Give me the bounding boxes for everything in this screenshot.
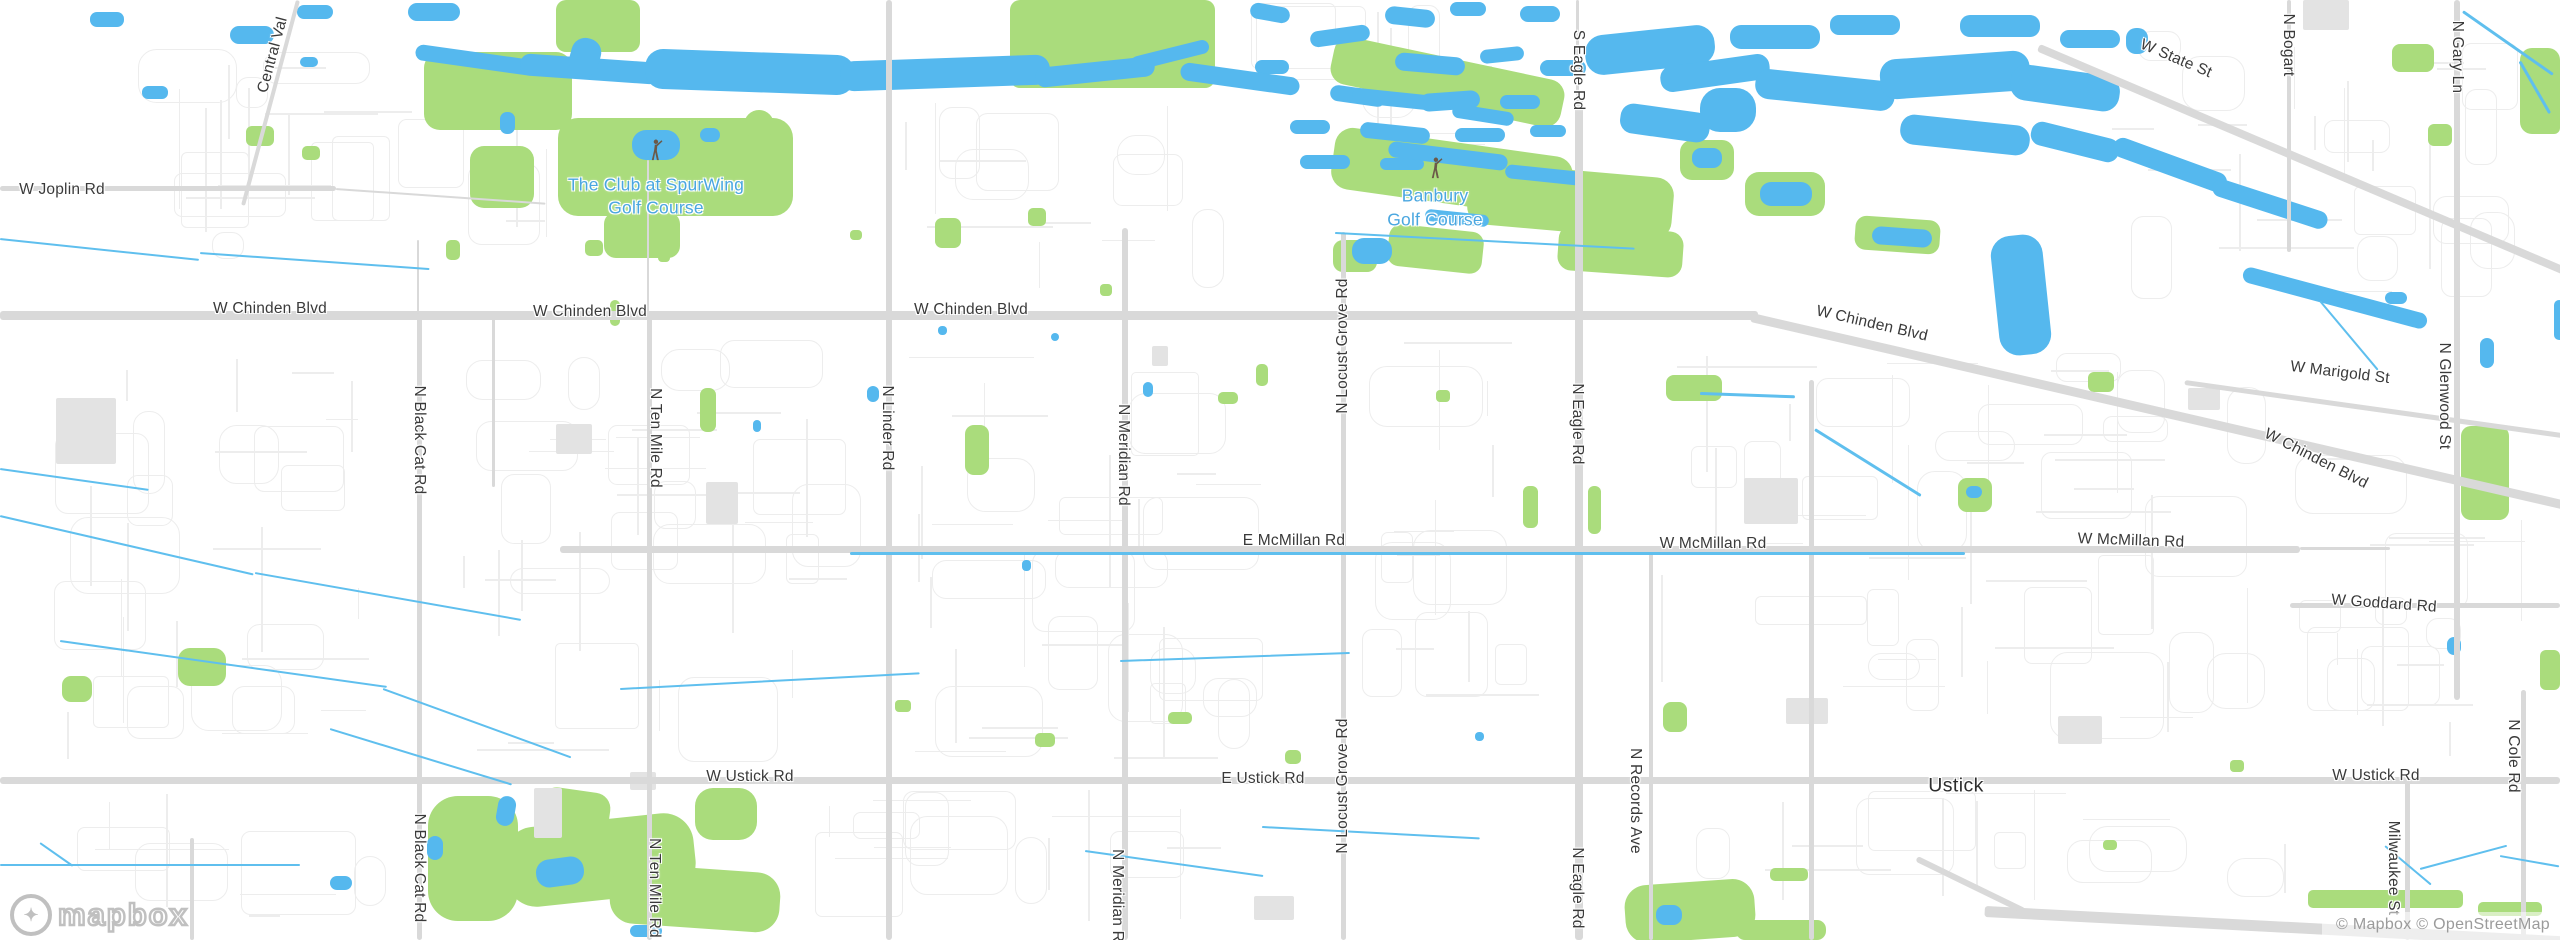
- minor-road-loop: [1055, 549, 1167, 588]
- water-body: [90, 12, 124, 27]
- park-area: [695, 788, 757, 840]
- minor-road-loop: [1129, 393, 1226, 454]
- minor-road-segment: [2167, 662, 2169, 732]
- poi-label: The Club at SpurWing: [568, 175, 744, 196]
- minor-road-loop: [1059, 497, 1163, 535]
- street-label: W Ustick Rd: [706, 768, 793, 786]
- water-body: [1300, 155, 1350, 169]
- minor-road-segment: [351, 381, 353, 452]
- building: [1786, 698, 1828, 724]
- minor-road-segment: [1878, 659, 1937, 661]
- street-label: W McMillan Rd: [2077, 530, 2184, 552]
- street-label: W Joplin Rd: [19, 181, 105, 199]
- minor-road-segment: [745, 522, 812, 524]
- minor-road-segment: [288, 115, 290, 195]
- water-body: [1989, 233, 2053, 358]
- minor-road-loop: [247, 624, 324, 670]
- minor-road-segment: [1492, 445, 1494, 497]
- minor-road-segment: [789, 578, 847, 580]
- minor-road-segment: [126, 370, 128, 401]
- park-area: [1523, 486, 1538, 528]
- minor-road-segment: [2389, 537, 2485, 539]
- park-area: [1328, 34, 1568, 130]
- minor-road-segment: [240, 894, 336, 896]
- water-body: [2385, 292, 2407, 304]
- minor-road-loop: [232, 686, 295, 733]
- water-body: [408, 3, 460, 21]
- park-area: [2088, 372, 2114, 392]
- building: [556, 424, 592, 454]
- minor-road-segment: [1677, 366, 1817, 368]
- park-area: [608, 862, 782, 934]
- minor-road-loop: [1203, 678, 1258, 718]
- water-body: [2008, 63, 2122, 114]
- minor-road-segment: [806, 419, 808, 537]
- park-area: [1436, 390, 1450, 402]
- minor-road-segment: [213, 548, 320, 550]
- minor-road-loop: [1362, 629, 1402, 697]
- park-area: [1588, 486, 1601, 534]
- street-label: N Ten Mile Rd: [645, 838, 663, 938]
- minor-road-segment: [1394, 531, 1454, 533]
- waterway-line: [2420, 845, 2507, 870]
- waterway-line: [850, 552, 1965, 555]
- minor-road-segment: [1976, 801, 1978, 891]
- minor-road-segment: [952, 415, 1048, 417]
- park-area: [658, 250, 670, 262]
- water-body: [1830, 15, 1900, 35]
- road: [492, 312, 495, 487]
- minor-road-loop: [501, 474, 552, 544]
- water-body: [1618, 102, 1711, 144]
- minor-road-loop: [1495, 644, 1527, 685]
- minor-road-loop: [241, 831, 356, 915]
- street-label: N Black Cat Rd: [410, 814, 428, 923]
- minor-road-segment: [2151, 495, 2153, 629]
- minor-road-segment: [738, 492, 800, 494]
- minor-road-segment: [321, 710, 366, 712]
- minor-road-segment: [939, 160, 1026, 162]
- water-body: [644, 48, 855, 95]
- minor-road-loop: [1113, 154, 1183, 205]
- minor-road-loop: [332, 136, 390, 220]
- minor-road-segment: [2036, 511, 2171, 513]
- building: [2058, 716, 2102, 744]
- park-area: [1285, 750, 1301, 764]
- park-area: [1666, 375, 1722, 401]
- street-label: N Eagle Rd: [1568, 847, 1586, 928]
- minor-road-segment: [1468, 611, 1470, 683]
- water-body: [1700, 88, 1756, 132]
- mapbox-wordmark: mapbox: [58, 897, 189, 933]
- water-body: [1530, 125, 1566, 137]
- minor-road-segment: [2357, 649, 2359, 715]
- minor-road-segment: [1163, 627, 1165, 758]
- minor-road-segment: [909, 357, 1033, 359]
- minor-road-segment: [982, 727, 1058, 729]
- minor-road-loop: [678, 677, 778, 762]
- road: [190, 838, 194, 940]
- minor-road-loop: [2207, 653, 2264, 709]
- park-area: [62, 676, 92, 702]
- park-area: [1663, 702, 1687, 732]
- minor-road-loop: [70, 517, 180, 593]
- street-label: W Chinden Blvd: [914, 301, 1028, 319]
- minor-road-loop: [720, 340, 823, 388]
- minor-road-segment: [2117, 372, 2119, 493]
- minor-road-segment: [1196, 484, 1261, 486]
- minor-road-segment: [905, 122, 907, 170]
- water-body: [300, 57, 318, 67]
- park-area: [302, 146, 320, 160]
- minor-road-segment: [1396, 648, 1434, 650]
- waterway-line: [383, 688, 572, 758]
- street-label: E McMillan Rd: [1243, 532, 1346, 550]
- road: [1809, 380, 1814, 940]
- street-label: N Cole Rd: [2504, 719, 2522, 792]
- road: [2454, 0, 2460, 700]
- park-area: [1168, 712, 1192, 724]
- minor-road-segment: [1487, 381, 1489, 416]
- minor-road-loop: [935, 686, 1042, 757]
- water-body: [2028, 119, 2121, 164]
- minor-road-segment: [205, 108, 207, 232]
- minor-road-segment: [1039, 242, 1041, 288]
- water-body: [2210, 177, 2330, 231]
- minor-road-segment: [215, 451, 307, 453]
- minor-road-loop: [1994, 832, 2026, 869]
- minor-road-segment: [2344, 88, 2346, 182]
- minor-road-segment: [1435, 500, 1437, 615]
- water-body: [1960, 15, 2040, 37]
- minor-road-segment: [2347, 81, 2349, 161]
- park-area: [2428, 124, 2452, 146]
- minor-road-segment: [1869, 557, 1966, 559]
- minor-road-segment: [2429, 130, 2431, 268]
- minor-road-loop: [955, 149, 1029, 200]
- minor-road-segment: [1942, 798, 1944, 896]
- minor-road-segment: [123, 617, 125, 723]
- minor-road-segment: [1404, 342, 1512, 344]
- street-label: W Ustick Rd: [2332, 767, 2419, 785]
- park-area: [1218, 392, 1238, 404]
- minor-road-loop: [1816, 378, 1910, 428]
- minor-road-segment: [1052, 816, 1181, 818]
- minor-road-segment: [1426, 694, 1539, 696]
- water-body: [1475, 732, 1484, 741]
- minor-road-segment: [1167, 847, 1222, 849]
- street-label: E Ustick Rd: [1221, 770, 1304, 788]
- water-body: [2480, 338, 2494, 368]
- minor-road-segment: [1892, 375, 1894, 482]
- water-body: [753, 420, 761, 432]
- minor-road-segment: [265, 113, 379, 115]
- minor-road-segment: [1114, 757, 1218, 759]
- building: [1152, 346, 1168, 366]
- minor-road-segment: [1706, 356, 1708, 472]
- minor-road-loop: [281, 465, 345, 512]
- minor-road-loop: [1192, 209, 1224, 289]
- map-attribution[interactable]: © Mapbox © OpenStreetMap: [2322, 912, 2560, 940]
- mapbox-logo[interactable]: ✦ mapbox: [10, 894, 189, 936]
- minor-road-segment: [1782, 802, 1784, 899]
- minor-road-loop: [2324, 120, 2390, 152]
- park-area: [178, 648, 226, 686]
- minor-road-segment: [1995, 647, 2115, 649]
- water-body: [700, 128, 720, 142]
- town-label: Ustick: [1928, 775, 1983, 798]
- street-label: W McMillan Rd: [1660, 535, 1767, 553]
- building: [2188, 388, 2220, 410]
- street-label: N Meridian Rd: [1108, 849, 1126, 940]
- minor-road-segment: [324, 111, 412, 113]
- park-area: [700, 388, 716, 432]
- minor-road-segment: [930, 577, 932, 628]
- poi-label: Golf Course: [608, 198, 704, 219]
- minor-road-loop: [2357, 236, 2398, 282]
- minor-road-loop: [1696, 828, 1730, 880]
- park-area: [2392, 44, 2434, 72]
- water-body: [330, 876, 352, 890]
- park-area: [1386, 223, 1485, 275]
- street-label: N Records Ave: [1626, 748, 1644, 854]
- waterway-line: [0, 238, 199, 261]
- street-label: N Glenwood St: [2435, 343, 2453, 450]
- park-area: [446, 240, 460, 260]
- park-area: [2520, 48, 2560, 134]
- minor-road-segment: [2314, 116, 2316, 150]
- waterway-line: [2500, 855, 2559, 867]
- park-area: [2230, 760, 2244, 772]
- water-body: [1352, 238, 1392, 264]
- water-body: [1520, 6, 1560, 22]
- park-area: [1028, 208, 1046, 226]
- minor-road-loop: [93, 676, 168, 728]
- building: [706, 482, 738, 524]
- water-body: [1966, 486, 1982, 498]
- minor-road-segment: [236, 359, 238, 412]
- water-body: [1450, 2, 1486, 16]
- park-area: [744, 110, 774, 140]
- water-body: [2554, 300, 2560, 340]
- minor-road-segment: [2034, 790, 2036, 901]
- minor-road-loop: [1381, 532, 1413, 583]
- street-label: W Marigold St: [2289, 358, 2390, 388]
- minor-road-segment: [935, 103, 937, 214]
- water-body: [938, 326, 947, 335]
- street-label: N Meridian Rd: [1114, 404, 1132, 506]
- mapbox-pin-icon: ✦: [10, 894, 52, 936]
- waterway-line: [1262, 826, 1480, 839]
- park-area: [1770, 868, 1808, 881]
- road: [1649, 548, 1653, 940]
- minor-road-segment: [127, 523, 129, 631]
- minor-road-segment: [2247, 588, 2249, 703]
- minor-road-segment: [498, 550, 500, 636]
- minor-road-segment: [1102, 240, 1154, 242]
- building: [1254, 896, 1294, 920]
- water-body: [1760, 182, 1812, 206]
- minor-road-loop: [2131, 216, 2172, 299]
- road: [2300, 547, 2390, 550]
- minor-road-segment: [1167, 106, 1169, 210]
- building: [534, 788, 562, 838]
- minor-road-segment: [1088, 790, 1090, 921]
- street-label: N Bogart: [2279, 14, 2297, 77]
- minor-road-loop: [135, 843, 228, 901]
- minor-road-segment: [477, 749, 609, 751]
- minor-road-segment: [1048, 838, 1050, 890]
- road: [1122, 228, 1128, 940]
- water-body: [297, 5, 333, 19]
- minor-road-loop: [2462, 43, 2518, 110]
- water-body: [1692, 148, 1722, 168]
- minor-road-loop: [127, 475, 173, 526]
- water-body: [1479, 46, 1524, 65]
- map-canvas[interactable]: W Joplin RdCentral ValThe Club at SpurWi…: [0, 0, 2560, 940]
- minor-road-segment: [1138, 499, 1140, 549]
- building: [2303, 0, 2349, 30]
- minor-road-loop: [174, 173, 286, 217]
- water-body: [1500, 95, 1540, 109]
- minor-road-segment: [261, 527, 263, 652]
- minor-road-loop: [905, 792, 949, 866]
- street-label: N Gary Ln: [2448, 21, 2466, 93]
- minor-road-segment: [242, 658, 369, 660]
- minor-road-segment: [1789, 404, 1791, 441]
- golfer-icon: [644, 136, 666, 169]
- water-body: [1899, 113, 2031, 156]
- minor-road-segment: [2382, 599, 2384, 726]
- minor-road-segment: [1661, 575, 1663, 682]
- poi-label: Banbury: [1402, 186, 1469, 207]
- minor-road-segment: [2397, 664, 2444, 666]
- minor-road-segment: [1042, 644, 1125, 646]
- minor-road-loop: [653, 524, 766, 584]
- water-body: [1051, 333, 1059, 341]
- poi-label: Golf Course: [1387, 210, 1483, 231]
- minor-road-loop: [1868, 653, 1920, 680]
- minor-road-loop: [2024, 587, 2093, 664]
- minor-road-segment: [1986, 580, 2088, 582]
- street-label: N Linder Rd: [878, 386, 896, 471]
- water-body: [1143, 382, 1153, 397]
- minor-road-segment: [2449, 722, 2451, 756]
- building: [1744, 478, 1798, 524]
- minor-road-segment: [166, 794, 168, 906]
- water-body: [142, 86, 168, 99]
- minor-road-loop: [2361, 646, 2440, 706]
- park-area: [2103, 840, 2117, 850]
- street-label: N Eagle Rd: [1568, 383, 1586, 464]
- minor-road-segment: [358, 588, 360, 618]
- minor-road-loop: [1415, 612, 1487, 697]
- minor-road-segment: [109, 802, 111, 849]
- minor-road-loop: [1048, 616, 1098, 690]
- park-area: [2540, 650, 2560, 690]
- golfer-icon: [1424, 154, 1446, 187]
- minor-road-segment: [915, 751, 1006, 753]
- minor-road-loop: [1856, 798, 1955, 875]
- street-label: S Eagle Rd: [1569, 30, 1587, 110]
- minor-road-loop: [1015, 837, 1047, 904]
- street-label: W Chinden Blvd: [533, 303, 647, 321]
- street-label: N Locust Grove Rd: [1334, 278, 1352, 413]
- minor-road-segment: [186, 197, 315, 199]
- minor-road-segment: [792, 650, 794, 698]
- minor-road-loop: [466, 360, 541, 400]
- water-body: [1754, 68, 1896, 112]
- minor-road-loop: [219, 425, 279, 484]
- street-label: N Black Cat Rd: [410, 386, 428, 495]
- minor-road-loop: [354, 856, 386, 906]
- minor-road-segment: [1048, 520, 1125, 522]
- minor-road-segment: [2112, 128, 2154, 130]
- minor-road-segment: [1177, 473, 1216, 475]
- park-area: [585, 240, 603, 256]
- minor-road-segment: [1967, 462, 2023, 464]
- water-body: [1879, 50, 2031, 100]
- minor-road-segment: [220, 100, 222, 209]
- road: [417, 240, 419, 314]
- park-area: [895, 700, 911, 712]
- park-area: [935, 218, 961, 248]
- minor-road-segment: [67, 712, 69, 759]
- minor-road-segment: [637, 437, 639, 536]
- minor-road-segment: [2083, 819, 2170, 821]
- water-body: [2060, 30, 2120, 48]
- minor-road-segment: [1961, 607, 1963, 677]
- minor-road-segment: [1109, 455, 1111, 588]
- minor-road-segment: [521, 540, 523, 612]
- minor-road-segment: [932, 524, 1013, 526]
- minor-road-loop: [555, 643, 639, 728]
- waterway-line: [0, 864, 300, 866]
- minor-road-segment: [1843, 686, 1945, 688]
- minor-road-loop: [1369, 366, 1482, 427]
- minor-road-segment: [2372, 140, 2374, 171]
- water-body: [1022, 560, 1031, 571]
- attribution-text: © Mapbox © OpenStreetMap: [2336, 916, 2550, 933]
- minor-road-segment: [326, 419, 358, 421]
- minor-road-segment: [95, 849, 229, 851]
- minor-road-segment: [1908, 445, 1910, 580]
- minor-road-loop: [1978, 404, 2083, 445]
- road: [1575, 98, 1583, 940]
- waterway-line: [255, 572, 521, 621]
- park-area: [965, 425, 989, 475]
- minor-road-segment: [1792, 845, 1863, 847]
- street-label: N Ten Mile Rd: [646, 388, 664, 488]
- minor-road-loop: [568, 357, 600, 411]
- park-area: [1256, 364, 1268, 386]
- waterway-line: [200, 252, 430, 270]
- minor-road-loop: [792, 484, 861, 568]
- minor-road-segment: [2337, 633, 2339, 665]
- minor-road-segment: [2044, 434, 2127, 436]
- street-label: Milwaukee St: [2384, 821, 2402, 916]
- minor-road-loop: [2227, 858, 2284, 897]
- minor-road-segment: [292, 372, 334, 374]
- minor-road-segment: [2429, 541, 2525, 543]
- water-body: [1290, 120, 1330, 134]
- street-label: N Locust Grove Rd: [1334, 718, 1352, 853]
- water-body: [500, 112, 515, 134]
- minor-road-segment: [222, 733, 308, 735]
- park-area: [1100, 284, 1112, 296]
- water-body: [1455, 128, 1505, 142]
- minor-road-segment: [485, 579, 556, 581]
